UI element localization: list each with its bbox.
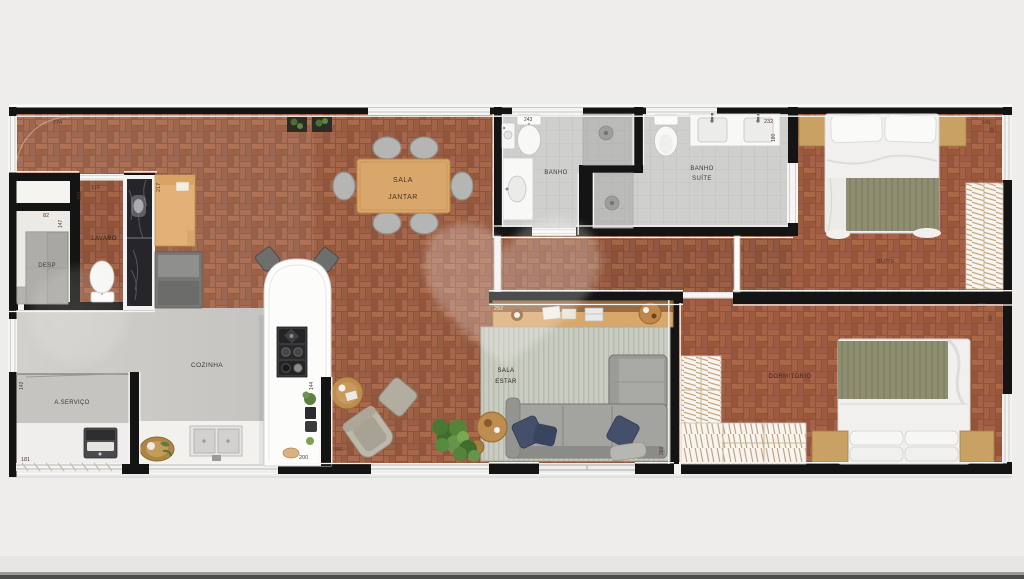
svg-text:DORMITÓRIO: DORMITÓRIO bbox=[769, 373, 812, 380]
svg-text:COZINHA: COZINHA bbox=[191, 362, 223, 369]
svg-text:345: 345 bbox=[981, 120, 990, 126]
svg-text:366: 366 bbox=[659, 446, 665, 455]
svg-text:90: 90 bbox=[990, 127, 996, 133]
svg-text:SUÍTE: SUÍTE bbox=[877, 258, 895, 265]
svg-text:774: 774 bbox=[53, 120, 62, 126]
svg-text:243: 243 bbox=[524, 117, 533, 123]
svg-text:328: 328 bbox=[977, 303, 986, 309]
svg-text:A.SERVIÇO: A.SERVIÇO bbox=[54, 400, 89, 406]
svg-text:82: 82 bbox=[43, 213, 49, 219]
svg-text:232: 232 bbox=[764, 119, 773, 125]
svg-text:217: 217 bbox=[156, 183, 162, 192]
svg-text:144: 144 bbox=[309, 381, 315, 390]
svg-text:ESTAR: ESTAR bbox=[495, 379, 517, 385]
svg-text:142: 142 bbox=[19, 381, 25, 390]
svg-text:147: 147 bbox=[58, 219, 64, 228]
svg-text:SALA: SALA bbox=[498, 368, 515, 374]
svg-text:90: 90 bbox=[988, 315, 994, 321]
svg-text:180: 180 bbox=[771, 133, 777, 142]
svg-text:SALA: SALA bbox=[393, 177, 413, 184]
svg-text:200: 200 bbox=[299, 455, 308, 461]
svg-text:506: 506 bbox=[333, 447, 342, 453]
svg-text:LAVABO: LAVABO bbox=[91, 236, 117, 242]
svg-text:181: 181 bbox=[21, 457, 30, 463]
svg-text:BANHO: BANHO bbox=[544, 170, 567, 176]
svg-text:114: 114 bbox=[91, 185, 100, 191]
svg-text:SUÍTE: SUÍTE bbox=[692, 175, 712, 182]
svg-text:103: 103 bbox=[77, 191, 83, 200]
svg-text:JANTAR: JANTAR bbox=[388, 194, 418, 201]
svg-text:BANHO: BANHO bbox=[690, 166, 713, 172]
